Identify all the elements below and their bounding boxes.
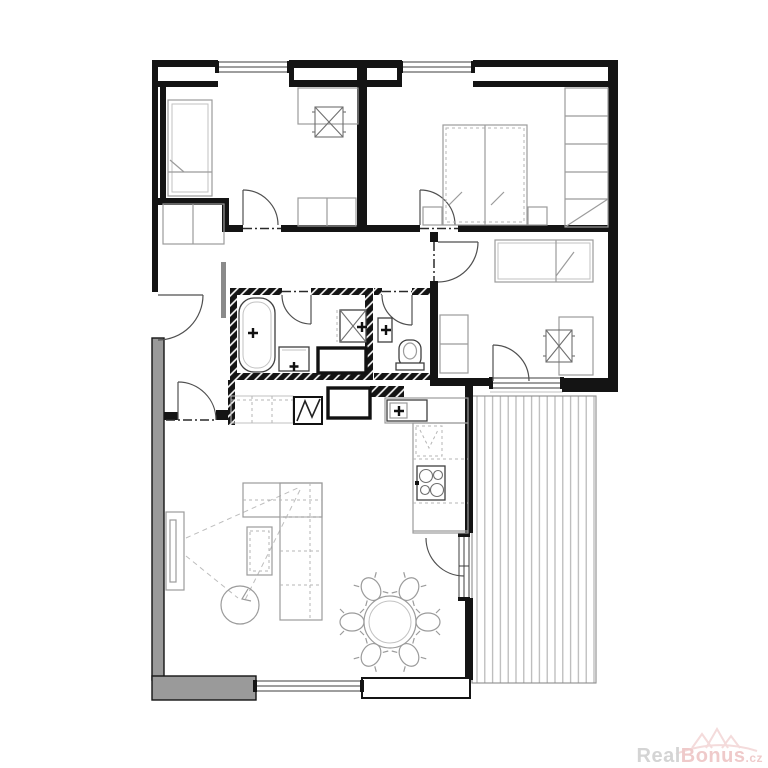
partition-stub — [221, 262, 226, 318]
bathtub — [239, 298, 275, 372]
utility-box — [294, 397, 322, 424]
french-window-bedroom-right — [489, 377, 564, 389]
washbasin-bathroom — [279, 347, 309, 371]
floor-plan: RealBonus.cz — [0, 0, 768, 768]
watermark-text: RealBonus.cz — [637, 745, 763, 767]
toilet — [396, 340, 424, 370]
kitchen-sink — [387, 400, 427, 421]
service-shaft-bathroom — [318, 348, 366, 373]
window-bedroom-master — [399, 61, 475, 73]
washing-machine — [337, 310, 367, 342]
canvas-background — [0, 0, 768, 768]
window-bedroom-top-left — [215, 61, 291, 73]
terrace-deck — [472, 392, 596, 683]
cooktop — [415, 466, 445, 500]
service-shaft-hall — [328, 388, 370, 418]
washbasin-wc — [378, 318, 392, 342]
window-living-room — [253, 680, 364, 692]
